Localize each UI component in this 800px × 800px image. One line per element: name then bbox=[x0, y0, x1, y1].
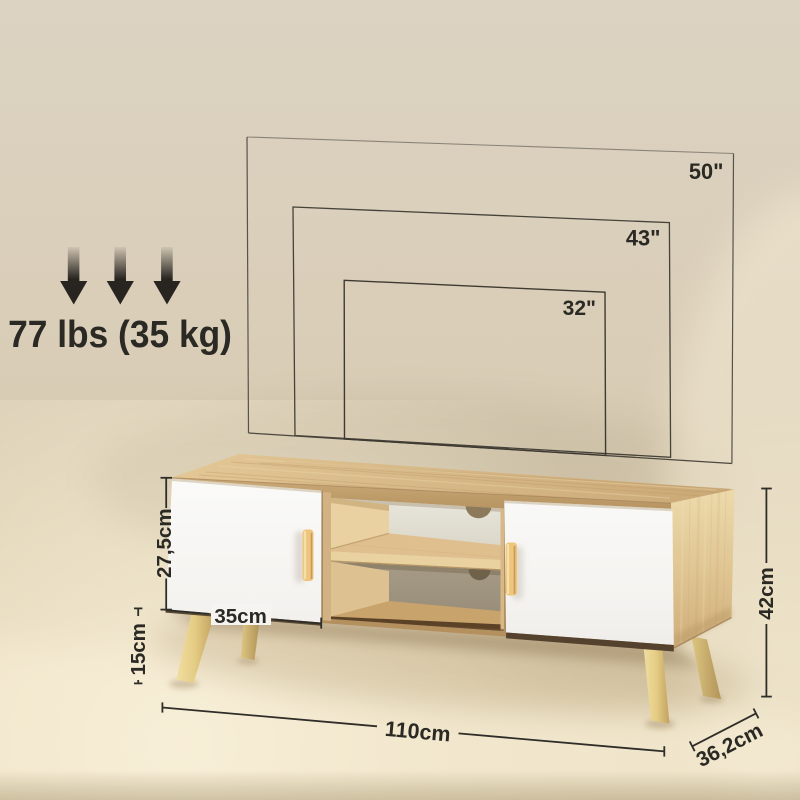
svg-text:35cm: 35cm bbox=[214, 605, 266, 628]
svg-text:15cm: 15cm bbox=[127, 623, 150, 675]
svg-text:50": 50" bbox=[689, 159, 724, 184]
svg-text:32": 32" bbox=[563, 297, 596, 320]
svg-text:77 lbs (35 kg): 77 lbs (35 kg) bbox=[8, 313, 232, 355]
svg-text:43": 43" bbox=[626, 225, 661, 250]
svg-text:27,5cm: 27,5cm bbox=[153, 508, 176, 578]
svg-text:42cm: 42cm bbox=[755, 567, 778, 619]
